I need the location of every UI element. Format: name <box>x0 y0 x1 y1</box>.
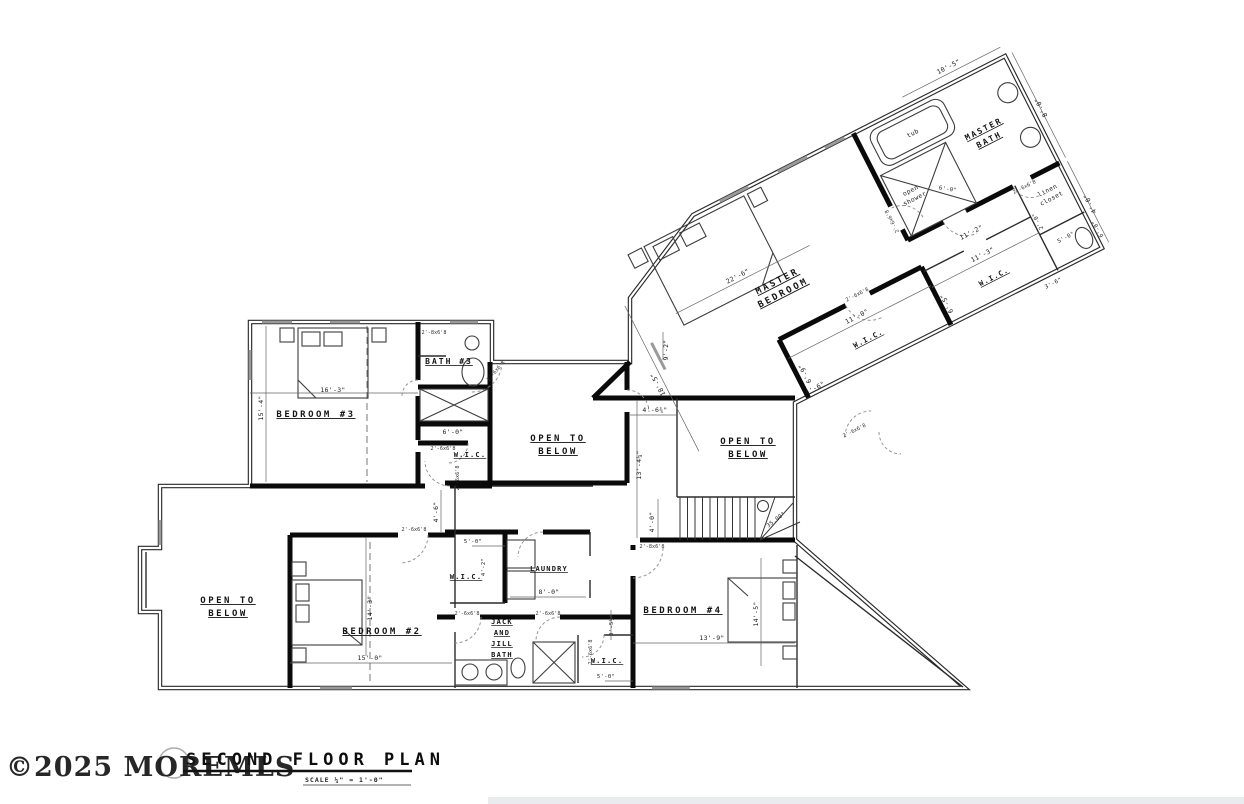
room-label-open-below-left-1: OPEN TO <box>200 596 255 606</box>
fixture-label-tub: tub <box>906 128 920 140</box>
room-label-open-below-center-2: BELOW <box>538 447 578 457</box>
dim-open-below-right: 13'-4¼" <box>635 450 643 480</box>
dim-wic-laundry-w: 5'-0" <box>464 539 482 545</box>
room-label-wic-laundry: W.I.C. <box>450 573 483 581</box>
wing-windows <box>608 138 901 370</box>
interior-thin-walls <box>146 356 963 688</box>
door-tag-jackjill-right: 2'-6x6'8 <box>536 611 561 617</box>
door-tag-bedroom3: 2'-6x6'8 <box>455 466 461 491</box>
watermark: ©2025 MOREMLS <box>6 752 295 783</box>
wing-fixtures <box>628 63 1096 435</box>
dim-bedroom2-right: 4'-6" <box>432 501 440 522</box>
dim-wic-bedroom4-v: 3'-5½" <box>608 614 615 636</box>
room-label-wic-bedroom4: W.I.C. <box>591 657 624 665</box>
dim-bath3: 6'-0" <box>442 428 463 436</box>
door-tag-wic-master: 2'-6x6'8 <box>845 287 870 304</box>
dim-master-bedroom-width: 22'-6" <box>725 267 751 286</box>
door-tag-bedroom2: 2'-6x6'8 <box>402 527 427 533</box>
door-tag-bath3-top: 2'-8x6'8 <box>422 330 447 336</box>
room-label-open-below-center-1: OPEN TO <box>530 434 585 444</box>
wing-door-swings <box>816 145 1057 329</box>
room-label-jackjill-3: JILL <box>491 640 513 648</box>
room-label-wic-master-2: W.I.C. <box>978 266 1011 288</box>
room-label-bath3: BATH #3 <box>425 357 473 366</box>
dim-linen-w: 2'-0" <box>1031 211 1045 230</box>
dim-bedroom4-w: 13'-9" <box>699 634 724 642</box>
dim-bedroom3-h: 15'-4" <box>257 395 265 420</box>
room-label-jackjill-2: AND <box>494 629 510 637</box>
dim-bedroom4-h: 14'-5" <box>752 601 760 626</box>
toilet-bath3 <box>465 336 479 350</box>
door-tag-jackjill-left: 2'-6x6'8 <box>455 611 480 617</box>
dim-bedroom2-w: 15'-0" <box>357 654 382 662</box>
dimension-lines <box>250 326 795 681</box>
plan-scale: SCALE ¼" = 1'-0" <box>305 776 384 784</box>
door-tag-wic-bedroom4: 2'-6x6'8 <box>588 640 594 665</box>
dim-corridor-v: 9'-2" <box>662 339 670 360</box>
floor-plan-canvas: MASTER BEDROOM 22'-6" tub open shower 6'… <box>0 0 1244 804</box>
room-label-jackjill-4: BATH <box>491 651 513 659</box>
dim-bedroom3-w: 16'-3" <box>320 386 345 394</box>
dim-laundry: 8'-0" <box>538 588 559 596</box>
room-label-open-below-left-2: BELOW <box>208 609 248 619</box>
door-tag-linen: 2'-6x6'8 <box>1012 179 1037 196</box>
scan-edge-strip <box>488 797 1244 804</box>
room-label-jackjill-1: JACK <box>491 618 513 626</box>
room-label-open-below-right-1: OPEN TO <box>720 437 775 447</box>
dim-linen-d: 5'-0" <box>1057 231 1076 245</box>
door-tag-wic-bath3: 2'-6x6'8 <box>431 446 456 452</box>
dim-corridor: 4'-6¾" <box>642 406 667 414</box>
room-label-wic-master-1: W.I.C. <box>852 328 885 350</box>
dim-master-hall: 11'-2" <box>958 223 984 242</box>
dim-wic-bedroom4-w: 5'-0" <box>597 674 615 680</box>
door-tag-bedroom4: 2'-8x6'8 <box>640 544 665 550</box>
room-label-bedroom3: BEDROOM #3 <box>276 410 355 420</box>
room-label-open-below-right-2: BELOW <box>728 450 768 460</box>
room-label-laundry: LAUNDRY <box>530 565 568 573</box>
floor-plan-page: MASTER BEDROOM 22'-6" tub open shower 6'… <box>0 0 1244 804</box>
washer <box>507 540 535 568</box>
dim-bedroom2-h: 14'-3" <box>366 595 374 620</box>
room-label-wic-bath3: W.I.C. <box>454 451 487 459</box>
dim-stair-width: 4'-0" <box>648 511 656 532</box>
room-label-bedroom2: BEDROOM #2 <box>342 627 421 637</box>
dryer <box>507 571 535 599</box>
dim-strip-bottom: 3'-6" <box>1044 277 1063 291</box>
room-label-bedroom4: BEDROOM #4 <box>643 606 722 616</box>
door-tag-master-bath: 2'-6x6'8 <box>884 209 901 234</box>
dim-wic-laundry-v: 4'-2" <box>481 558 487 576</box>
toilet-jackjill <box>511 658 525 678</box>
door-tag-master-entry: 2'-6x6'8 <box>842 423 867 440</box>
vanity-jackjill <box>455 660 507 685</box>
